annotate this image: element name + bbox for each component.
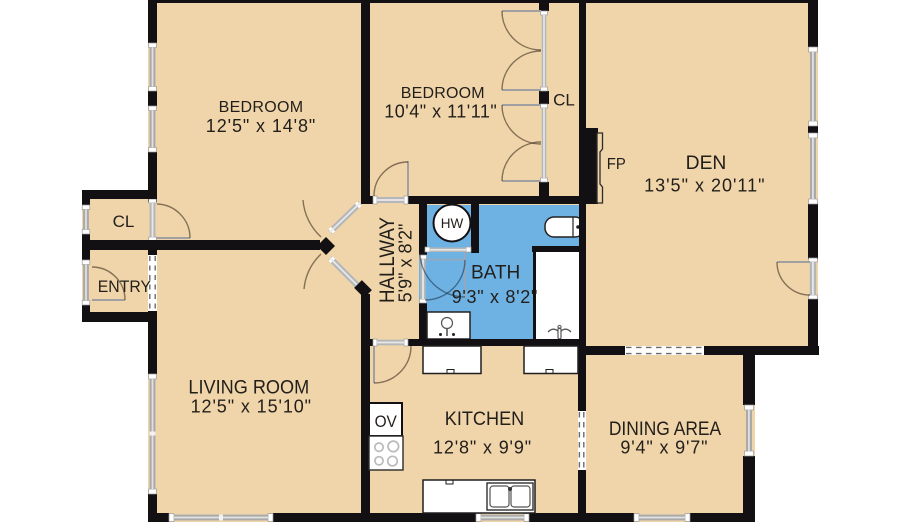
svg-text:12'5" x 15'10": 12'5" x 15'10" <box>191 397 312 417</box>
svg-text:CL: CL <box>113 212 135 231</box>
svg-text:12'8" x 9'9": 12'8" x 9'9" <box>433 437 532 457</box>
svg-text:DINING AREA: DINING AREA <box>609 417 722 439</box>
svg-text:FP: FP <box>607 156 626 174</box>
svg-text:BEDROOM: BEDROOM <box>219 99 304 116</box>
svg-text:BATH: BATH <box>471 263 520 284</box>
svg-text:9'3" x 8'2": 9'3" x 8'2" <box>452 287 538 307</box>
svg-text:5'9" x 8'2": 5'9" x 8'2" <box>396 224 416 303</box>
svg-text:10'4" x 11'11": 10'4" x 11'11" <box>384 101 497 121</box>
svg-text:9'4" x 9'7": 9'4" x 9'7" <box>620 437 708 457</box>
svg-text:BEDROOM: BEDROOM <box>401 85 485 102</box>
svg-text:LIVING ROOM: LIVING ROOM <box>188 376 309 398</box>
svg-text:KITCHEN: KITCHEN <box>445 407 525 429</box>
svg-text:DEN: DEN <box>686 152 727 174</box>
svg-text:ENTRY: ENTRY <box>98 278 151 297</box>
svg-text:OV: OV <box>375 412 398 431</box>
svg-text:13'5" x 20'11": 13'5" x 20'11" <box>644 175 765 195</box>
svg-text:HW: HW <box>441 216 464 231</box>
svg-text:12'5" x 14'8": 12'5" x 14'8" <box>206 116 316 136</box>
svg-text:CL: CL <box>553 91 575 110</box>
